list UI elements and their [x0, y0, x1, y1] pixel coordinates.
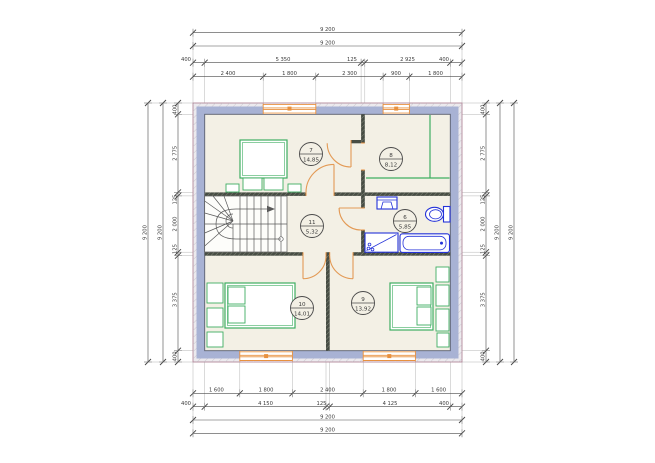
room-number: 6 [403, 215, 407, 221]
bathtub [400, 234, 450, 253]
dim: 400 [481, 351, 487, 361]
floor-plan-page: 9 200 9 200 400 5 350 125 2 925 400 2 40… [0, 0, 655, 463]
dim: 400 [481, 105, 487, 115]
room-number: 10 [298, 302, 306, 308]
dim: 2 400 [320, 388, 335, 394]
room-label-9: 9 13,92 [352, 292, 375, 315]
room-area: 8,12 [385, 163, 397, 169]
dimensions-bottom: 1 600 1 800 2 400 1 800 1 600 400 4 150 … [181, 388, 465, 438]
shelf [436, 267, 449, 282]
dim: 1 800 [282, 71, 297, 77]
dim: 2 775 [481, 146, 487, 161]
dim: 5 350 [276, 57, 291, 63]
room-number: 9 [361, 297, 365, 303]
dim-right-total-1: 9 200 [495, 225, 501, 240]
dim: 900 [391, 71, 401, 77]
room-area: 14,01 [294, 312, 310, 318]
dim: 1 800 [382, 388, 397, 394]
room-number: 7 [309, 148, 313, 154]
nightstand [226, 184, 239, 192]
room-label-6: 6 5,85 [394, 210, 417, 233]
room-number: 8 [389, 153, 393, 159]
room-number: 11 [308, 220, 316, 226]
pillow [243, 178, 262, 190]
dim: 125 [317, 401, 327, 407]
dim: 400 [439, 401, 449, 407]
toilet [426, 207, 451, 223]
dresser [207, 308, 223, 327]
shelf [437, 333, 449, 347]
nightstand [288, 184, 301, 192]
room-area: 13,92 [355, 307, 371, 313]
dim: 400 [439, 57, 449, 63]
dim: 2 925 [400, 57, 415, 63]
dim: 400 [173, 351, 179, 361]
pillow [264, 178, 283, 190]
dim: 2 775 [173, 146, 179, 161]
room-label-8: 8 8,12 [380, 148, 403, 171]
nightstand [207, 283, 223, 303]
dim-top-total-1: 9 200 [320, 27, 335, 33]
window-top-2 [383, 104, 409, 114]
dim: 2 300 [342, 71, 357, 77]
dim: 2 000 [481, 217, 487, 232]
pillow [417, 307, 431, 325]
pillow [417, 287, 431, 305]
pillow [228, 287, 245, 304]
dim: 125 [481, 244, 487, 254]
shower [365, 233, 398, 252]
dim: 1 800 [259, 388, 274, 394]
dim: 400 [181, 401, 191, 407]
dim-left-total-1: 9 200 [143, 225, 149, 240]
window-bottom-2 [363, 351, 415, 361]
dim: 2 000 [173, 217, 179, 232]
room-label-11: 11 5,32 [301, 215, 324, 238]
dim-left-total-2: 9 200 [158, 225, 164, 240]
room-label-10: 10 14,01 [291, 297, 314, 320]
dim: 1 800 [428, 71, 443, 77]
pillow [228, 306, 245, 323]
room-area: 5,32 [306, 230, 318, 236]
dim-bottom-total-2: 9 200 [320, 428, 335, 434]
dim: 125 [173, 244, 179, 254]
staircase [205, 196, 287, 252]
dim: 400 [173, 105, 179, 115]
dim: 4 150 [258, 401, 273, 407]
nightstand [207, 332, 223, 347]
room-area: 14,85 [303, 158, 319, 164]
dimensions-top: 9 200 9 200 400 5 350 125 2 925 400 2 40… [181, 27, 465, 81]
dim: 125 [481, 195, 487, 205]
nightstand [436, 309, 449, 331]
sink [377, 197, 397, 209]
dim: 3 375 [481, 292, 487, 307]
floor-plan-drawing: 9 200 9 200 400 5 350 125 2 925 400 2 40… [0, 0, 655, 463]
dim: 1 600 [209, 388, 224, 394]
room-label-7: 7 14,85 [300, 143, 323, 166]
dim: 400 [181, 57, 191, 63]
dim: 125 [347, 57, 357, 63]
dimensions-left: 9 200 9 200 400 2 775 125 2 000 125 3 37… [143, 100, 183, 365]
dim-bottom-total-1: 9 200 [320, 414, 335, 420]
room-area: 5,85 [399, 225, 412, 231]
dim-right-total-2: 9 200 [509, 225, 515, 240]
dim: 1 600 [431, 388, 446, 394]
window-top-1 [263, 104, 316, 114]
dim: 2 400 [221, 71, 236, 77]
nightstand [436, 285, 449, 306]
window-bottom-1 [240, 351, 293, 361]
dim: 3 375 [173, 292, 179, 307]
dim-top-total-2: 9 200 [320, 40, 335, 46]
dim: 125 [173, 195, 179, 205]
dim: 4 125 [383, 401, 398, 407]
dimensions-right: 400 2 775 125 2 000 125 3 375 400 9 200 … [481, 100, 519, 365]
